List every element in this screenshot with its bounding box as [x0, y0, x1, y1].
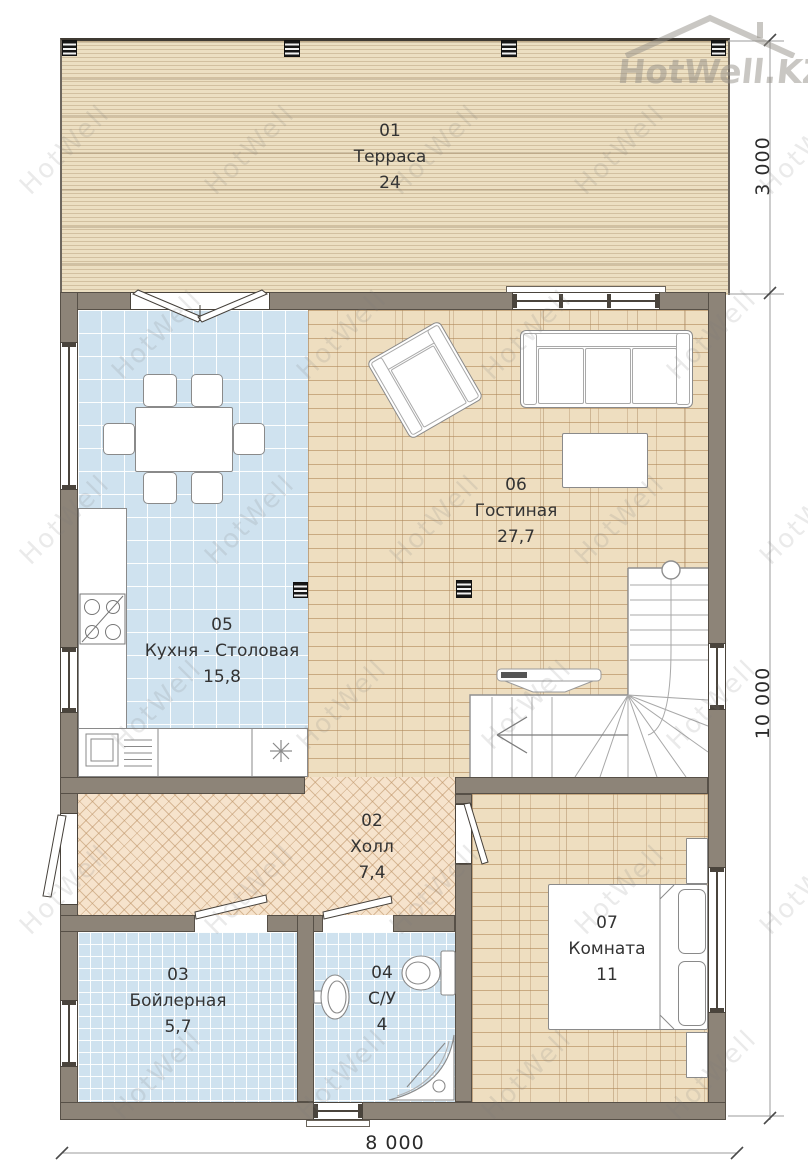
room-name: Холл	[350, 834, 394, 860]
sofa	[520, 330, 693, 408]
room-number: 01	[379, 118, 401, 144]
room-number: 05	[211, 612, 233, 638]
window-kitchen-2	[60, 647, 78, 713]
room-area: 4	[377, 1012, 388, 1038]
doorway-terrace-french	[130, 292, 270, 310]
window-mullion	[607, 294, 611, 308]
label-terrace: 01 Терраса 24	[300, 118, 480, 196]
label-bathroom: 04 С/У 4	[292, 960, 472, 1038]
window-bathroom	[313, 1102, 363, 1120]
dining-chair	[191, 374, 223, 407]
label-kitchen: 05 Кухня - Столовая 15,8	[132, 612, 312, 690]
room-name: Комната	[568, 936, 645, 962]
nightstand	[686, 1032, 708, 1078]
sofa-cushion	[632, 348, 677, 404]
room-area: 15,8	[203, 664, 241, 690]
window-bedroom	[708, 867, 726, 1013]
terrace-post-1	[62, 40, 77, 56]
room-area: 24	[379, 170, 401, 196]
room-area: 27,7	[497, 524, 535, 550]
room-name: Терраса	[354, 144, 427, 170]
room-number: 06	[505, 472, 527, 498]
window-boiler	[60, 1000, 78, 1067]
wall-exterior-bottom	[60, 1102, 726, 1120]
room-number: 03	[167, 962, 189, 988]
dining-chair	[233, 423, 265, 455]
room-area: 5,7	[164, 1014, 191, 1040]
watermark-text: HotWell	[754, 469, 808, 571]
room-name: Гостиная	[475, 498, 558, 524]
window-mullion	[559, 294, 563, 308]
sofa-armrest	[523, 333, 537, 405]
wall-hall-bedroom-a	[455, 794, 472, 804]
label-living: 06 Гостиная 27,7	[426, 472, 606, 550]
room-number: 02	[361, 808, 383, 834]
label-hall: 02 Холл 7,4	[282, 808, 462, 886]
column-kitchen	[293, 582, 308, 598]
sofa-back	[523, 333, 690, 347]
watermark-text: HotWell	[754, 839, 808, 941]
dining-chair	[143, 472, 177, 504]
room-name: Кухня - Столовая	[145, 638, 300, 664]
dining-chair	[191, 472, 223, 504]
floor-plan: 01 Терраса 24 05 Кухня - Столовая 15,8 0…	[0, 0, 808, 1160]
room-area: 7,4	[358, 860, 385, 886]
terrace-post-2	[284, 40, 300, 57]
label-boiler: 03 Бойлерная 5,7	[88, 962, 268, 1040]
sofa-armrest	[676, 333, 690, 405]
room-name: С/У	[368, 986, 396, 1012]
column-living	[456, 580, 472, 598]
room-area: 11	[596, 962, 618, 988]
stairs-upper-flight	[628, 568, 708, 695]
room-number: 07	[596, 910, 618, 936]
label-bedroom: 07 Комната 11	[517, 910, 697, 988]
sofa-cushion	[585, 348, 631, 404]
sofa-cushion	[538, 348, 584, 404]
nightstand	[686, 838, 708, 884]
terrace-post-4	[711, 40, 726, 56]
window-stairs	[708, 643, 726, 710]
wall-living-bedroom	[455, 777, 708, 794]
wall-hall-boiler-b	[267, 915, 323, 932]
dining-chair	[103, 423, 135, 455]
wall-hall-boiler-c	[393, 915, 455, 932]
room-number: 04	[371, 960, 393, 986]
wall-kitchen-hall	[60, 777, 305, 794]
terrace-post-3	[501, 40, 517, 57]
dining-chair	[143, 374, 177, 407]
dimension-terrace-depth: 3 000	[752, 121, 774, 211]
room-name: Бойлерная	[130, 988, 227, 1014]
window-living-top	[512, 292, 660, 310]
stairs-lower-flight	[470, 695, 708, 777]
window-kitchen-1	[60, 342, 78, 490]
dimension-house-width: 8 000	[345, 1132, 445, 1154]
wall-hall-boiler-a	[60, 915, 195, 932]
window-sill-bathroom	[306, 1120, 370, 1127]
kitchen-counter-bottom	[78, 728, 308, 777]
dining-table	[135, 407, 233, 472]
dimension-house-depth: 10 000	[752, 650, 774, 756]
doorway-entrance	[60, 813, 78, 905]
